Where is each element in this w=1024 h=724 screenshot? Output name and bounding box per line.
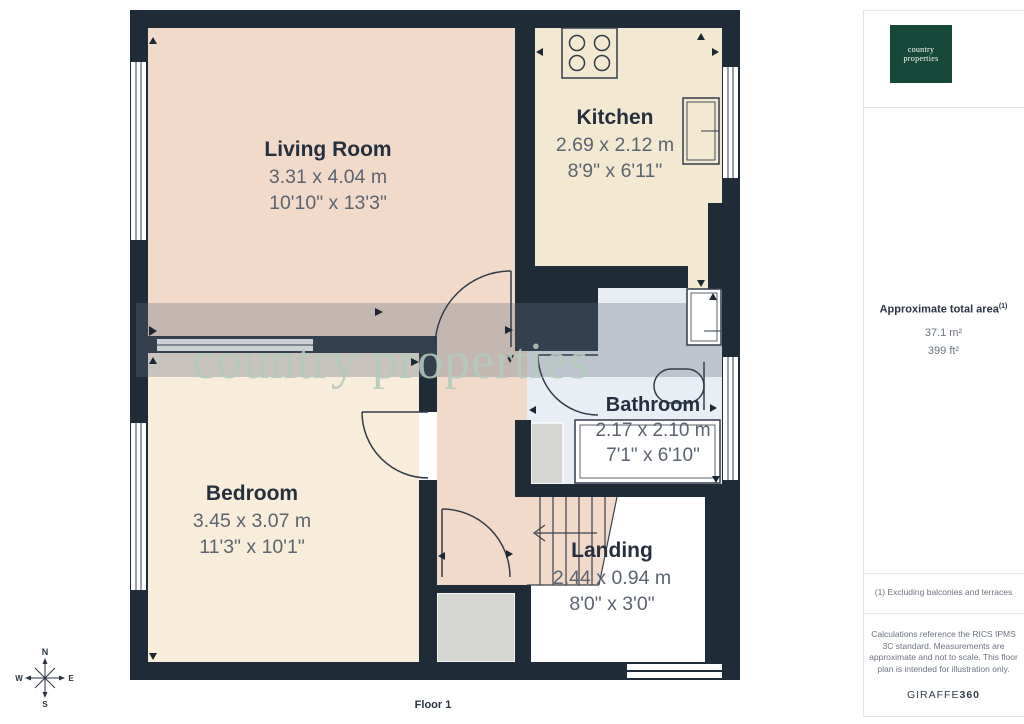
shower-icon [687,289,721,345]
entry-step [627,664,722,670]
room-name: Living Room [264,136,391,164]
kitchen-window [723,67,738,178]
room-dim-metric: 2.69 x 2.12 m [556,132,674,158]
stove-icon [562,28,617,78]
room-dim-imperial: 11'3" x 10'1" [193,534,311,560]
floor-label: Floor 1 [415,699,452,711]
agency-logo-line1: country [904,45,939,55]
sidebar-divider-vertical [863,10,864,716]
room-name: Bedroom [193,480,311,508]
total-area-block: Approximate total area(1) 37.1 m² 399 ft… [863,303,1024,360]
room-label-bathroom: Bathroom 2.17 x 2.10 m 7'1" x 6'10" [595,392,710,468]
room-name: Bathroom [595,392,710,418]
brand-number: 360 [959,689,980,701]
total-area-metric: 37.1 m² [863,324,1024,342]
sidebar-divider [863,10,1024,11]
room-dim-imperial: 10'10" x 13'3" [264,190,391,216]
room-dim-metric: 2.44 x 0.94 m [553,565,671,591]
sink-icon [683,98,719,164]
sidebar-divider [863,716,1024,717]
giraffe360-brand: GIRAFFE360 [863,689,1024,701]
agency-logo-line2: properties [904,54,939,64]
bathroom-window [723,357,738,480]
compass-rose: N S W E [5,636,85,716]
cupboard-small-area [531,423,563,484]
room-label-bedroom: Bedroom 3.45 x 3.07 m 11'3" x 10'1" [193,480,311,560]
room-dim-metric: 2.17 x 2.10 m [595,418,710,443]
entry-step [627,672,722,678]
agency-logo: country properties [890,25,952,83]
sidebar-divider [863,107,1024,108]
room-name: Kitchen [556,104,674,132]
room-name: Landing [553,537,671,565]
total-area-imperial: 399 ft² [863,342,1024,360]
cupboard-area [437,593,515,662]
brand-name: GIRAFFE [907,689,960,701]
room-label-kitchen: Kitchen 2.69 x 2.12 m 8'9" x 6'11" [556,104,674,184]
compass-west-label: W [15,674,23,683]
compass-south-label: S [42,700,48,709]
sidebar-divider [863,573,1024,574]
area-footnote: (1) Excluding balconies and terraces [863,587,1024,597]
floorplan-page: country properties Living Room 3.31 x 4.… [0,0,1024,724]
total-area-title: Approximate total area(1) [863,303,1024,316]
room-label-living-room: Living Room 3.31 x 4.04 m 10'10" x 13'3" [264,136,391,216]
compass-north-label: N [42,647,49,657]
footnote-reference: (1) [999,303,1008,310]
room-dim-metric: 3.31 x 4.04 m [264,164,391,190]
bedroom-window [131,423,146,590]
room-dim-metric: 3.45 x 3.07 m [193,508,311,534]
room-dim-imperial: 8'0" x 3'0" [553,591,671,617]
living-room-window [131,62,146,240]
watermark-text: country properties [192,332,590,391]
compass-east-label: E [68,674,74,683]
room-label-landing: Landing 2.44 x 0.94 m 8'0" x 3'0" [553,537,671,617]
disclaimer-text: Calculations reference the RICS IPMS 3C … [868,629,1019,675]
room-dim-imperial: 8'9" x 6'11" [556,158,674,184]
room-dim-imperial: 7'1" x 6'10" [595,443,710,468]
sidebar-divider [863,613,1024,614]
